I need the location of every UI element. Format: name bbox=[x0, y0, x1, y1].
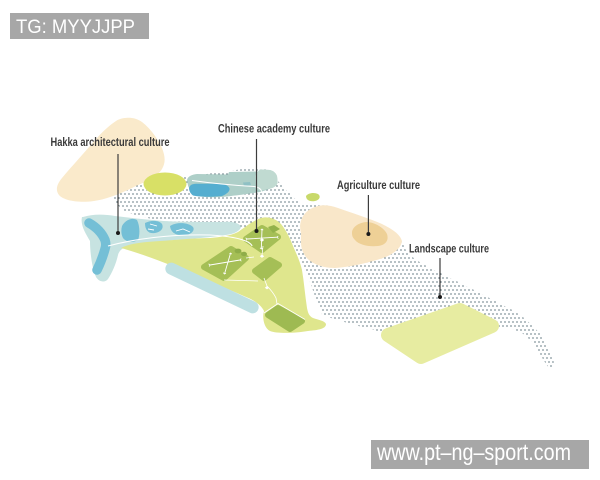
svg-text:www.pt–ng–sport.com: www.pt–ng–sport.com bbox=[376, 439, 571, 465]
svg-text:Chinese academy culture: Chinese academy culture bbox=[218, 123, 330, 136]
svg-text:Hakka architectural culture: Hakka architectural culture bbox=[51, 136, 170, 149]
svg-text:Landscape culture: Landscape culture bbox=[409, 243, 489, 256]
svg-text:Agriculture culture: Agriculture culture bbox=[337, 179, 420, 192]
svg-text:TG: MYYJJPP: TG: MYYJJPP bbox=[16, 17, 135, 38]
